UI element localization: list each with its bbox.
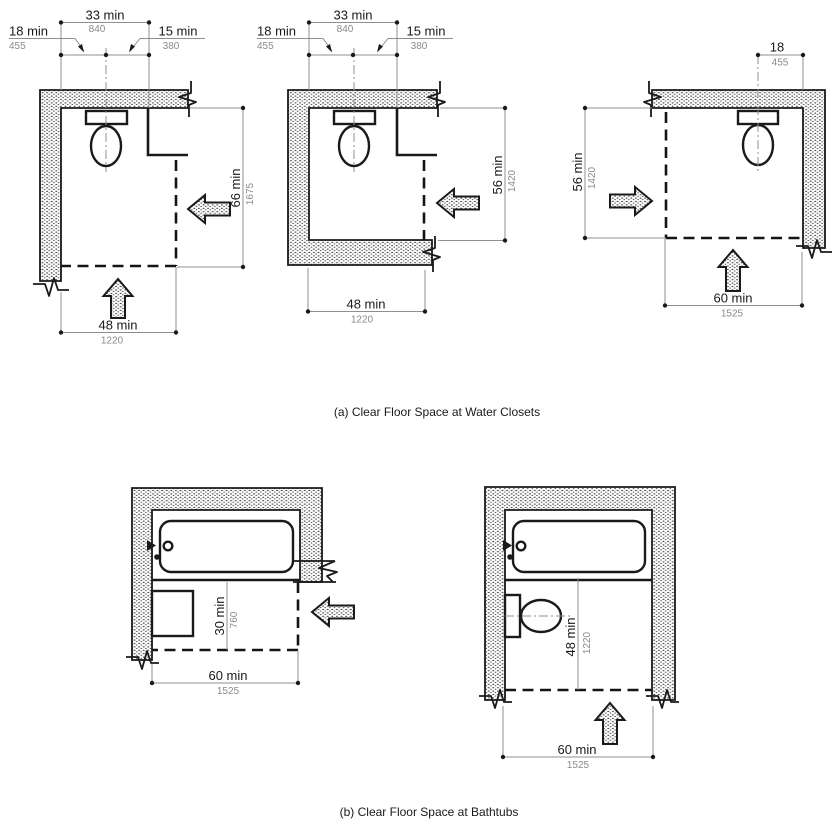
dim-open-side-metric: 380	[163, 41, 180, 52]
dim-width-imperial: 60 min	[713, 291, 752, 306]
dim-width-metric: 1525	[721, 309, 744, 320]
diagram-tub-with-lavatory: 30 min 760 60 min 1525	[126, 488, 354, 697]
clearance-boundary-dashed	[666, 112, 802, 238]
diagram-wc-adjacent-wall: 33 min 840 18 min 455 15 min 380 66 min …	[9, 8, 256, 347]
clear-floor-space-figure: 33 min 840 18 min 455 15 min 380 66 min …	[0, 0, 839, 830]
diagram-wc-corner: 18 455 56 min 1420 60 min 1525	[570, 40, 832, 320]
dim-centerline-width-metric: 840	[337, 24, 354, 35]
approach-arrow-left-icon	[312, 598, 354, 626]
bathtub-plan	[160, 521, 293, 572]
faucet-control-icon	[517, 542, 526, 551]
approach-arrow-up-icon	[104, 279, 133, 318]
dimension-lines	[501, 578, 655, 759]
approach-arrow-left-icon	[188, 195, 230, 223]
diagram-wc-facing-wall: 33 min 840 18 min 455 15 min 380 56 min …	[257, 8, 518, 326]
faucet-control-icon	[164, 542, 173, 551]
dim-depth-imperial: 30 min	[212, 596, 227, 635]
dim-width-metric: 1525	[567, 760, 590, 771]
dim-depth-metric: 1420	[587, 166, 598, 189]
figure-canvas: 33 min 840 18 min 455 15 min 380 66 min …	[0, 0, 839, 830]
privacy-partition	[397, 108, 437, 155]
drain-icon	[507, 554, 513, 560]
dim-depth-metric: 760	[229, 611, 240, 628]
dim-width-imperial: 48 min	[98, 318, 137, 333]
dim-depth-imperial: 56 min	[570, 152, 585, 191]
clearance-boundary-dashed	[61, 160, 176, 266]
dim-wall-side-imperial: 18 min	[9, 24, 48, 39]
bathtub-plan	[513, 521, 645, 572]
wall	[485, 487, 675, 700]
dim-centerline-width-imperial: 33 min	[85, 8, 124, 23]
dim-open-side-imperial: 15 min	[406, 24, 445, 39]
privacy-partition	[148, 108, 188, 155]
dim-open-side-imperial: 15 min	[158, 24, 197, 39]
dim-width-imperial: 60 min	[557, 742, 596, 757]
dimension-endpoints	[306, 20, 507, 313]
approach-arrow-right-icon	[610, 187, 652, 215]
dim-centerline-width-metric: 840	[89, 24, 106, 35]
approach-arrow-left-icon	[437, 189, 479, 217]
caption-a: (a) Clear Floor Space at Water Closets	[334, 405, 540, 419]
dim-wall-side-metric: 455	[257, 41, 274, 52]
dim-depth-metric: 1420	[507, 169, 518, 192]
dim-width-metric: 1220	[351, 315, 374, 326]
diagram-tub-with-water-closet: 48 min 1220 60 min 1525	[479, 487, 679, 771]
approach-arrow-up-icon	[719, 250, 748, 291]
dim-wall-side-metric: 455	[9, 41, 26, 52]
dim-width-imperial: 60 min	[208, 668, 247, 683]
dim-centerline-width-imperial: 33 min	[333, 8, 372, 23]
dim-width-imperial: 48 min	[346, 297, 385, 312]
dim-width-metric: 1525	[217, 686, 240, 697]
lavatory-plan	[152, 591, 193, 636]
approach-arrow-up-icon	[596, 703, 625, 744]
dim-wall-side-metric: 455	[772, 58, 789, 69]
dim-open-side-metric: 380	[411, 41, 428, 52]
caption-b: (b) Clear Floor Space at Bathtubs	[340, 805, 519, 819]
dim-depth-metric: 1220	[582, 631, 593, 654]
dim-depth-imperial: 48 min	[563, 617, 578, 656]
leader-arrowhead-icon	[78, 44, 84, 53]
dim-depth-imperial: 56 min	[490, 155, 505, 194]
dim-depth-metric: 1675	[245, 182, 256, 205]
dim-wall-side-imperial: 18 min	[257, 24, 296, 39]
faucet-spout-icon	[503, 540, 512, 551]
leader-arrowhead-icon	[326, 44, 332, 53]
dimension-endpoints	[59, 20, 245, 334]
drain-icon	[154, 554, 160, 560]
dim-wall-side-imperial: 18	[770, 40, 784, 55]
dim-width-metric: 1220	[101, 336, 124, 347]
